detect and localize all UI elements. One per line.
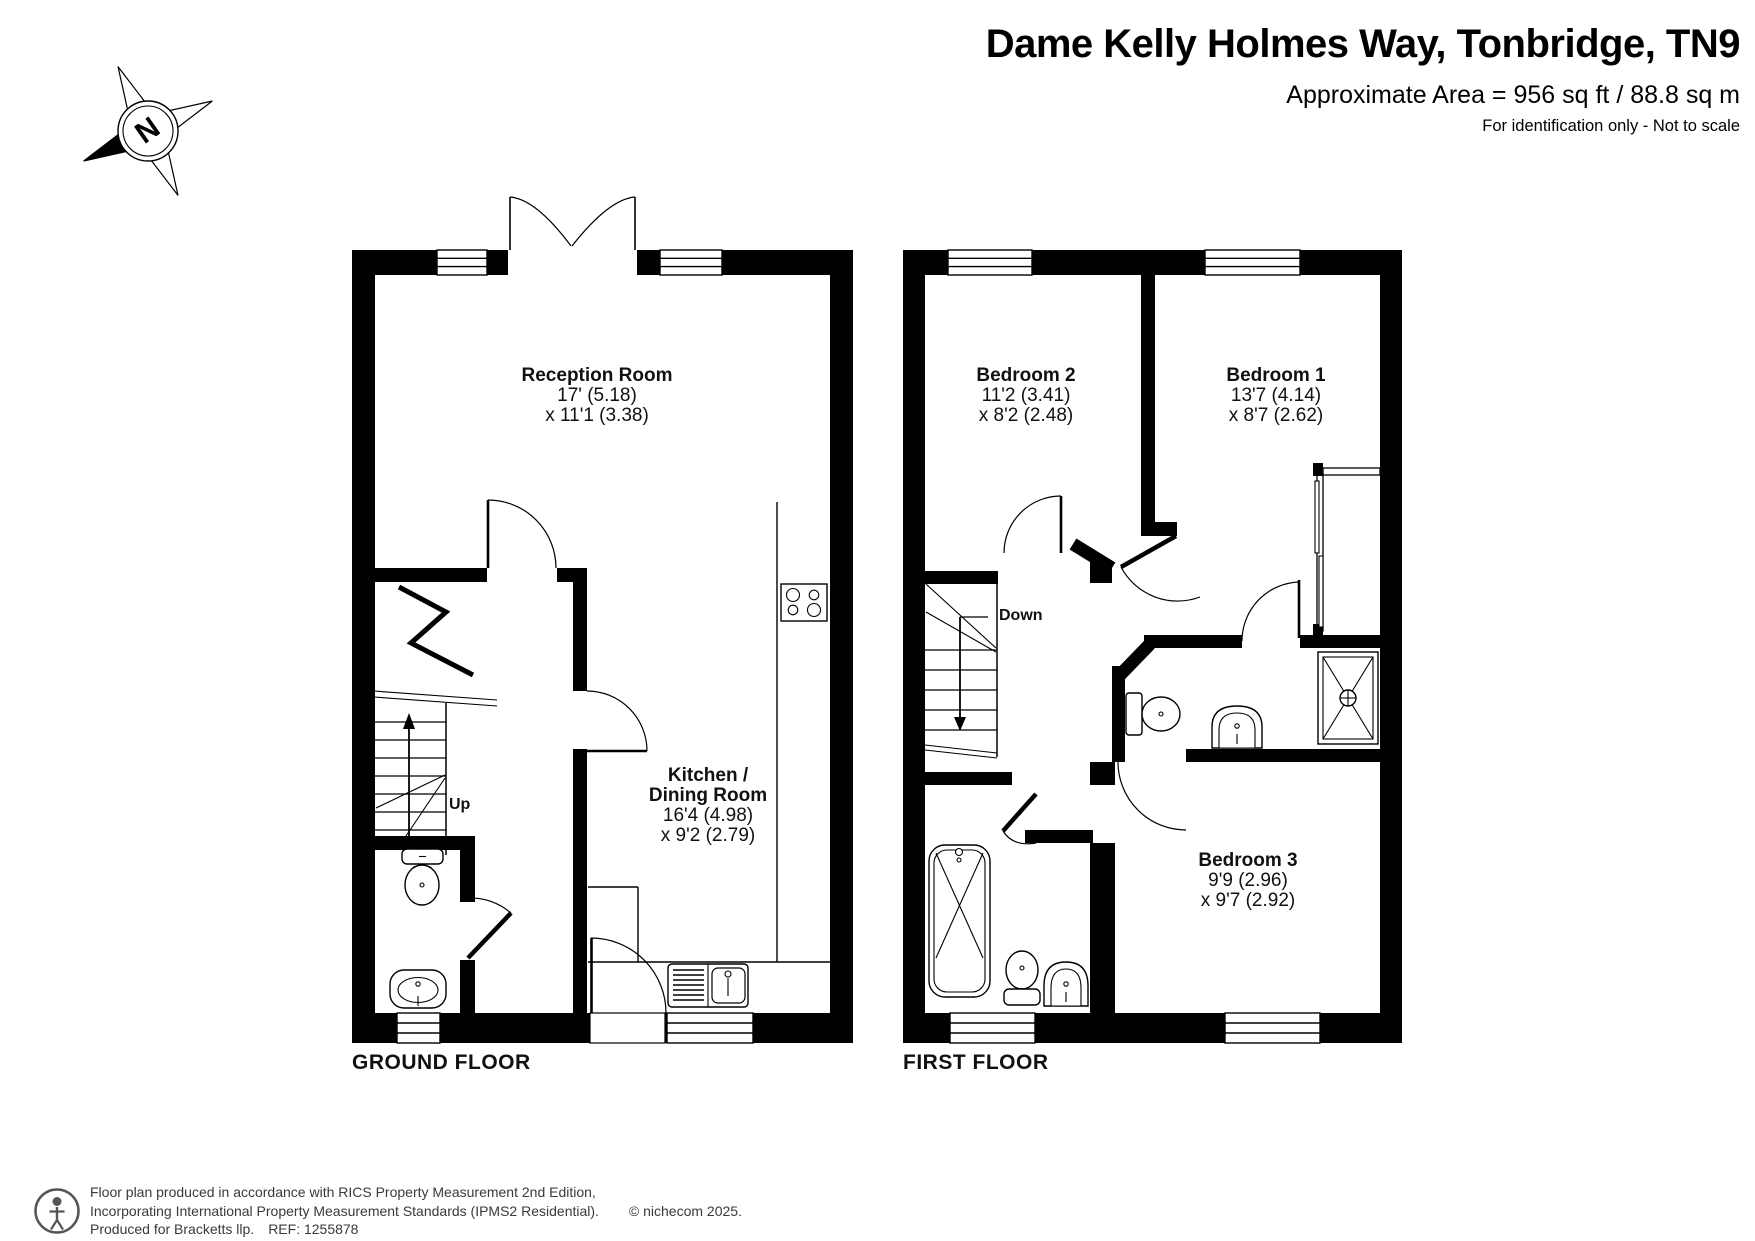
room-dim: 16'4 (4.98) [598,806,818,826]
floorplan-page: Dame Kelly Holmes Way, Tonbridge, TN9 Ap… [0,0,1755,1241]
room-name: Reception Room [487,366,707,386]
window-icon [667,1013,753,1043]
room-dim: 9'9 (2.96) [1138,871,1358,891]
room-label-reception: Reception Room 17' (5.18) x 11'1 (3.38) [487,366,707,426]
window-icon [1225,1013,1320,1043]
ff-wardrobe [1313,463,1380,644]
ff-bedroom3-door [1118,762,1186,830]
footer-line1: Floor plan produced in accordance with R… [90,1183,742,1202]
ff-bedroom2-door [1004,496,1061,553]
gf-french-doors [508,197,637,275]
footer-disclaimer: Floor plan produced in accordance with R… [90,1183,742,1239]
approximate-area: Approximate Area = 956 sq ft / 88.8 sq m [986,82,1740,108]
gf-wc-door [468,898,511,958]
identification-note: For identification only - Not to scale [986,117,1740,135]
footer-line2-text: Incorporating International Property Mea… [90,1203,599,1219]
ff-bath-icon [929,845,990,997]
window-icon [948,250,1032,275]
room-label-kitchen: Kitchen / Dining Room 16'4 (4.98) x 9'2 … [598,766,818,846]
gf-basin-icon [390,970,446,1008]
window-icon [950,1013,1035,1043]
stairs-down-label: Down [999,607,1043,625]
room-dim: x 9'2 (2.79) [598,826,818,846]
ff-ensuite-door [1242,580,1299,641]
window-icon [1205,250,1300,275]
room-name: Bedroom 2 [916,366,1136,386]
ground-floor-caption: GROUND FLOOR [352,1051,531,1075]
gf-kitchen-door [587,691,647,751]
room-label-bedroom2: Bedroom 2 11'2 (3.41) x 8'2 (2.48) [916,366,1136,426]
gf-front-door [590,938,666,1043]
room-name: Bedroom 1 [1166,366,1386,386]
window-icon [660,250,722,275]
gf-stairs-up [374,691,497,855]
room-dim: 17' (5.18) [487,386,707,406]
gf-toilet-icon [402,849,443,905]
room-dim: x 8'7 (2.62) [1166,406,1386,426]
room-dim: 13'7 (4.14) [1166,386,1386,406]
ff-ensuite-basin-icon [1212,706,1262,748]
window-icon [437,250,487,275]
floorplan-drawing [0,0,1755,1241]
room-name: Kitchen / [598,766,818,786]
window-icon [397,1013,440,1043]
ff-stairs-down [925,584,997,758]
footer-produced-for: Produced for Bracketts llp. [90,1221,254,1237]
room-name: Bedroom 3 [1138,851,1358,871]
gf-reception-door [488,500,556,568]
page-title: Dame Kelly Holmes Way, Tonbridge, TN9 [986,22,1740,66]
gf-bifold-door [399,587,473,675]
stairs-up-label: Up [449,796,470,814]
footer-line3: Produced for Bracketts llp.REF: 1255878 [90,1220,742,1239]
gf-hob-icon [781,584,827,621]
ff-ensuite-toilet-icon [1126,693,1180,735]
ground-floor-plan [352,197,853,1043]
first-floor-caption: FIRST FLOOR [903,1051,1049,1075]
ff-ensuite-diagonal-wall [1120,644,1150,675]
footer-line2: Incorporating International Property Mea… [90,1202,742,1221]
room-name: Dining Room [598,786,818,806]
room-dim: x 9'7 (2.92) [1138,891,1358,911]
footer-ref: REF: 1255878 [268,1220,358,1239]
room-dim: x 8'2 (2.48) [916,406,1136,426]
gf-kitchen-sink-icon [668,964,748,1007]
room-label-bedroom3: Bedroom 3 9'9 (2.96) x 9'7 (2.92) [1138,851,1358,911]
ff-shower-icon [1318,652,1378,744]
ff-basin-icon [1044,962,1088,1006]
ff-toilet-icon [1004,951,1040,1005]
room-dim: x 11'1 (3.38) [487,406,707,426]
ff-bedroom1-door [1121,536,1200,601]
gf-kitchen-counter [588,502,830,962]
header: Dame Kelly Holmes Way, Tonbridge, TN9 Ap… [986,22,1740,135]
room-label-bedroom1: Bedroom 1 13'7 (4.14) x 8'7 (2.62) [1166,366,1386,426]
footer-copyright: © nichecom 2025. [629,1202,742,1221]
room-dim: 11'2 (3.41) [916,386,1136,406]
